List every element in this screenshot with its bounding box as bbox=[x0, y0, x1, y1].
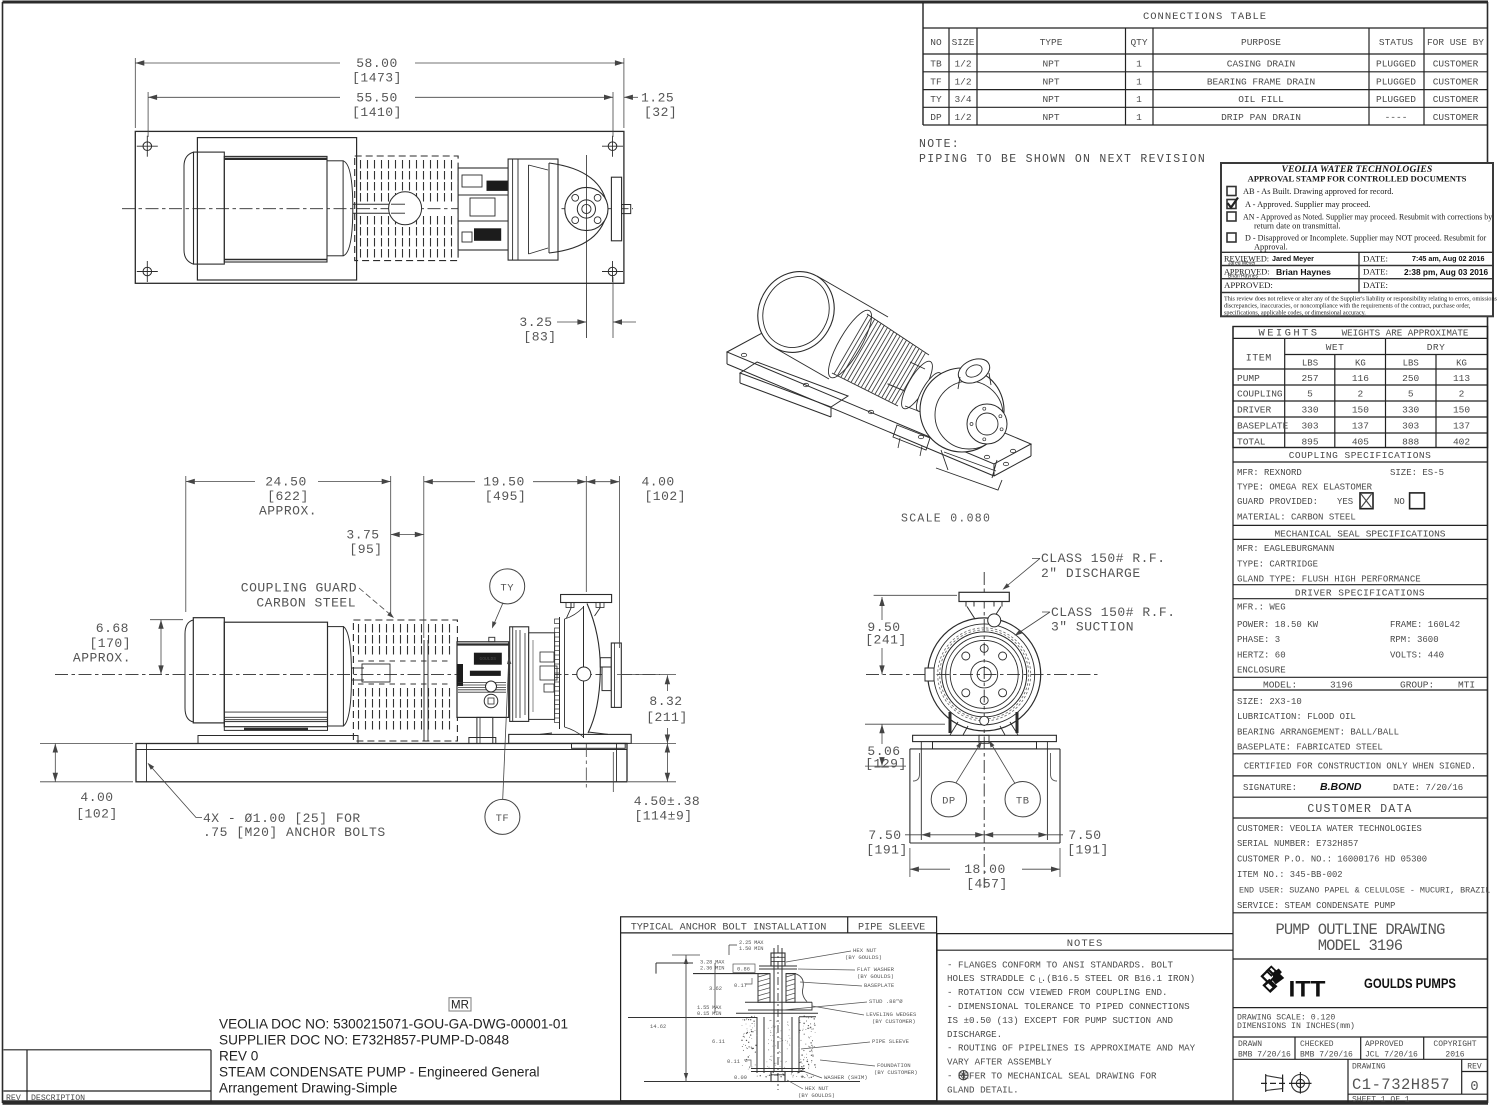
svg-text:POWER: 18.50 KW: POWER: 18.50 KW bbox=[1237, 620, 1319, 630]
svg-text:SCALE 0.080: SCALE 0.080 bbox=[901, 513, 991, 526]
svg-text:888: 888 bbox=[1402, 436, 1419, 447]
svg-text:TYPE: OMEGA REX ELASTOMER: TYPE: OMEGA REX ELASTOMER bbox=[1237, 483, 1373, 493]
svg-text:ENCLOSURE: ENCLOSURE bbox=[1237, 665, 1286, 675]
svg-text:- DIMENSIONAL TOLERANCE TO PIP: - DIMENSIONAL TOLERANCE TO PIPED CONNECT… bbox=[947, 1001, 1190, 1012]
svg-text:KG: KG bbox=[1355, 359, 1366, 369]
svg-text:AB - As Built. Drawing approv: AB - As Built. Drawing approved for reco… bbox=[1243, 187, 1393, 196]
svg-text:MFR: REXNORD: MFR: REXNORD bbox=[1237, 468, 1302, 478]
svg-text:COUPLING SPECIFICATIONS: COUPLING SPECIFICATIONS bbox=[1289, 450, 1432, 461]
svg-text:4.00: 4.00 bbox=[642, 475, 675, 490]
svg-text:DATE:: DATE: bbox=[1363, 267, 1388, 277]
svg-text:330: 330 bbox=[1301, 405, 1318, 416]
svg-text:[1473]: [1473] bbox=[352, 71, 402, 86]
svg-text:DRAWING: DRAWING bbox=[1352, 1063, 1386, 1072]
svg-text:ITT: ITT bbox=[1289, 977, 1327, 1002]
svg-text:This review does not relieve o: This review does not relieve or alter an… bbox=[1224, 296, 1497, 303]
svg-text:PURPOSE: PURPOSE bbox=[1241, 37, 1281, 48]
svg-text:specifications, applicable cod: specifications, applicable codes, or dim… bbox=[1224, 310, 1366, 317]
svg-text:895: 895 bbox=[1301, 436, 1318, 447]
svg-text:GOULDS PUMPS: GOULDS PUMPS bbox=[1364, 976, 1456, 991]
svg-text:DRY: DRY bbox=[1427, 342, 1446, 353]
svg-text:[191]: [191] bbox=[866, 842, 908, 857]
svg-text:[457]: [457] bbox=[966, 877, 1008, 892]
svg-text:Jared Meyer: Jared Meyer bbox=[1228, 261, 1256, 267]
svg-text:0.15 MIN: 0.15 MIN bbox=[697, 1011, 721, 1017]
svg-text:CUSTOMER: CUSTOMER bbox=[1433, 94, 1479, 105]
svg-text:SHEET 1 OF 1: SHEET 1 OF 1 bbox=[1352, 1096, 1410, 1105]
svg-text:SERIAL NUMBER: E732H857: SERIAL NUMBER: E732H857 bbox=[1237, 839, 1358, 849]
svg-text:HERTZ: 60: HERTZ: 60 bbox=[1237, 651, 1286, 661]
svg-text:KG: KG bbox=[1456, 359, 1467, 369]
svg-text:- ROTATION CCW VIEWED FROM COU: - ROTATION CCW VIEWED FROM COUPLING END. bbox=[947, 987, 1168, 998]
svg-text:TB: TB bbox=[1016, 795, 1030, 807]
svg-text:APPROX.: APPROX. bbox=[259, 504, 317, 519]
svg-text:STUD .88"Ø: STUD .88"Ø bbox=[869, 998, 903, 1005]
svg-text:(BY GOULDS): (BY GOULDS) bbox=[798, 1092, 835, 1099]
svg-text:1: 1 bbox=[1136, 94, 1142, 105]
svg-text:ITEM NO.: 345-BB-002: ITEM NO.: 345-BB-002 bbox=[1237, 870, 1343, 880]
svg-text:MECHANICAL SEAL SPECIFICATIONS: MECHANICAL SEAL SPECIFICATIONS bbox=[1274, 529, 1445, 540]
svg-text:WASHER (SHIM): WASHER (SHIM) bbox=[824, 1074, 868, 1081]
svg-text:BEARING ARRANGEMENT: BALL/BALL: BEARING ARRANGEMENT: BALL/BALL bbox=[1237, 728, 1399, 738]
svg-text:CASING DRAIN: CASING DRAIN bbox=[1227, 59, 1295, 70]
svg-text:NPT: NPT bbox=[1042, 76, 1059, 87]
svg-text:REV: REV bbox=[6, 1094, 21, 1103]
svg-text:GLAND DETAIL.: GLAND DETAIL. bbox=[947, 1084, 1019, 1095]
svg-text:3.25: 3.25 bbox=[519, 315, 552, 330]
svg-text:GLAND TYPE: FLUSH HIGH PERFORM: GLAND TYPE: FLUSH HIGH PERFORMANCE bbox=[1237, 574, 1421, 584]
svg-text:HOLES STRADDLE C .(B16.5 STEEL: HOLES STRADDLE C .(B16.5 STEEL OR B16.1 … bbox=[947, 973, 1195, 984]
svg-text:GOULDS: GOULDS bbox=[480, 656, 497, 662]
svg-text:END USER: SUZANO PAPEL & CELUL: END USER: SUZANO PAPEL & CELULOSE - MUCU… bbox=[1239, 885, 1490, 895]
svg-text:Brian Haynes: Brian Haynes bbox=[1276, 267, 1331, 277]
svg-text:14.62: 14.62 bbox=[650, 1024, 666, 1030]
svg-text:- FLANGES CONFORM TO ANSI STAN: - FLANGES CONFORM TO ANSI STANDARDS. BOL… bbox=[947, 959, 1174, 970]
svg-text:250: 250 bbox=[1402, 373, 1419, 384]
svg-text:NPT: NPT bbox=[1042, 94, 1059, 105]
svg-text:2:38 pm, Aug 03 2016: 2:38 pm, Aug 03 2016 bbox=[1404, 267, 1488, 277]
svg-text:B.BOND: B.BOND bbox=[1320, 781, 1362, 793]
svg-text:YES: YES bbox=[1337, 497, 1353, 507]
svg-text:1: 1 bbox=[1136, 76, 1142, 87]
svg-text:[83]: [83] bbox=[523, 330, 556, 345]
svg-text:CUSTOMER: CUSTOMER bbox=[1433, 59, 1479, 70]
svg-text:LBS: LBS bbox=[1302, 359, 1318, 369]
svg-text:HEX NUT: HEX NUT bbox=[853, 947, 877, 954]
svg-text:2016: 2016 bbox=[1445, 1050, 1464, 1059]
svg-text:DESCRIPTION: DESCRIPTION bbox=[31, 1094, 85, 1103]
svg-text:WEIGHTS ARE APPROXIMATE: WEIGHTS ARE APPROXIMATE bbox=[1342, 328, 1469, 339]
svg-text:BMB 7/20/16: BMB 7/20/16 bbox=[1238, 1050, 1291, 1059]
svg-text:BASEPLATE: BASEPLATE bbox=[1237, 421, 1289, 432]
svg-text:0.86: 0.86 bbox=[737, 967, 750, 973]
svg-text:MFR: EAGLEBURGMANN: MFR: EAGLEBURGMANN bbox=[1237, 544, 1334, 554]
svg-text:3/4: 3/4 bbox=[954, 94, 971, 105]
svg-text:DRIVER: DRIVER bbox=[1237, 405, 1272, 416]
svg-text:SIZE: ES-5: SIZE: ES-5 bbox=[1390, 468, 1444, 478]
svg-text:2" DISCHARGE: 2" DISCHARGE bbox=[1041, 566, 1141, 581]
svg-text:DIMENSIONS IN INCHES(mm): DIMENSIONS IN INCHES(mm) bbox=[1237, 1021, 1355, 1031]
svg-text:DISCHARGE.: DISCHARGE. bbox=[947, 1029, 1002, 1040]
svg-text:DATE: 7/20/16: DATE: 7/20/16 bbox=[1393, 783, 1463, 793]
svg-text:JCL 7/20/16: JCL 7/20/16 bbox=[1365, 1050, 1418, 1059]
svg-text:NOTE:: NOTE: bbox=[919, 138, 960, 151]
svg-text:TYPICAL ANCHOR BOLT INSTALLATI: TYPICAL ANCHOR BOLT INSTALLATION bbox=[631, 923, 827, 934]
svg-text:CUSTOMER: CUSTOMER bbox=[1433, 112, 1479, 123]
svg-text:7.50: 7.50 bbox=[1068, 828, 1101, 843]
svg-text:D - Disapproved or Incomplete: D - Disapproved or Incomplete. Supplier … bbox=[1245, 234, 1487, 243]
svg-text:SIZE: SIZE bbox=[952, 37, 975, 48]
svg-text:LBS: LBS bbox=[1403, 359, 1419, 369]
svg-text:A - Approved. Supplier may pr: A - Approved. Supplier may proceed. bbox=[1245, 200, 1370, 209]
svg-text:BEARING FRAME DRAIN: BEARING FRAME DRAIN bbox=[1207, 76, 1315, 87]
svg-text:55.50: 55.50 bbox=[356, 90, 398, 105]
svg-text:VOLTS: 440: VOLTS: 440 bbox=[1390, 651, 1444, 661]
svg-text:CLASS 150# R.F.: CLASS 150# R.F. bbox=[1051, 605, 1176, 620]
svg-text:[95]: [95] bbox=[349, 542, 382, 557]
svg-text:return date on transmittal.: return date on transmittal. bbox=[1254, 222, 1341, 231]
svg-text:STATUS: STATUS bbox=[1379, 37, 1414, 48]
svg-text:1.50 MIN: 1.50 MIN bbox=[739, 946, 763, 952]
svg-text:405: 405 bbox=[1352, 436, 1369, 447]
svg-text:TYPE: CARTRIDGE: TYPE: CARTRIDGE bbox=[1237, 559, 1318, 569]
svg-text:PUMP: PUMP bbox=[1237, 373, 1260, 384]
svg-text:0: 0 bbox=[1470, 1079, 1478, 1095]
svg-text:(BY CUSTOMER): (BY CUSTOMER) bbox=[874, 1069, 918, 1076]
svg-text:402: 402 bbox=[1453, 436, 1470, 447]
svg-text:[622]: [622] bbox=[267, 489, 309, 504]
svg-text:L: L bbox=[1038, 978, 1042, 986]
svg-text:PHASE: 3: PHASE: 3 bbox=[1237, 635, 1280, 645]
svg-text:303: 303 bbox=[1402, 421, 1419, 432]
svg-text:Jared Meyer: Jared Meyer bbox=[1272, 254, 1314, 263]
svg-text:MODEL:: MODEL: bbox=[1263, 680, 1297, 691]
svg-text:137: 137 bbox=[1352, 421, 1369, 432]
svg-text:(BY GOULDS): (BY GOULDS) bbox=[845, 954, 882, 961]
svg-text:6.11: 6.11 bbox=[712, 1039, 725, 1045]
svg-text:OIL FILL: OIL FILL bbox=[1238, 94, 1284, 105]
svg-text:WET: WET bbox=[1326, 342, 1345, 353]
svg-text:GUARD PROVIDED:: GUARD PROVIDED: bbox=[1237, 497, 1318, 507]
svg-text:NPT: NPT bbox=[1042, 112, 1059, 123]
svg-text:CUSTOMER: VEOLIA WATER TECHNOL: CUSTOMER: VEOLIA WATER TECHNOLOGIES bbox=[1237, 824, 1422, 834]
svg-text:3196: 3196 bbox=[1330, 680, 1353, 691]
svg-text:CHECKED: CHECKED bbox=[1300, 1040, 1334, 1049]
svg-text:COUPLING GUARD: COUPLING GUARD bbox=[241, 581, 357, 596]
svg-text:7:45 am, Aug 02 2016: 7:45 am, Aug 02 2016 bbox=[1412, 254, 1484, 263]
svg-text:DRIP PAN DRAIN: DRIP PAN DRAIN bbox=[1221, 112, 1301, 123]
svg-text:C1-732H857: C1-732H857 bbox=[1352, 1076, 1450, 1094]
svg-text:8.32: 8.32 bbox=[649, 694, 682, 709]
svg-text:2: 2 bbox=[1358, 389, 1364, 400]
svg-text:1/2: 1/2 bbox=[954, 112, 971, 123]
svg-text:BASEPLATE: FABRICATED STEEL: BASEPLATE: FABRICATED STEEL bbox=[1237, 743, 1383, 753]
svg-text:FOUNDATION: FOUNDATION bbox=[877, 1062, 911, 1069]
svg-text:WEIGHTS: WEIGHTS bbox=[1259, 328, 1320, 340]
svg-text:----: ---- bbox=[1385, 112, 1408, 123]
svg-text:PIPE SLEEVE: PIPE SLEEVE bbox=[872, 1038, 910, 1045]
svg-text:VEOLIA DOC NO: 5300215071-GOU-: VEOLIA DOC NO: 5300215071-GOU-GA-DWG-000… bbox=[219, 1016, 568, 1031]
svg-text:24.50: 24.50 bbox=[265, 475, 307, 490]
svg-text:TY: TY bbox=[500, 583, 514, 595]
svg-text:CUSTOMER P.O. NO.: 16000176 HD: CUSTOMER P.O. NO.: 16000176 HD 05300 bbox=[1237, 855, 1427, 865]
svg-text:Brian Haynes: Brian Haynes bbox=[1228, 274, 1259, 280]
svg-text:TOTAL: TOTAL bbox=[1237, 436, 1266, 447]
svg-text:MODEL 3196: MODEL 3196 bbox=[1318, 937, 1403, 955]
svg-text:DP: DP bbox=[930, 112, 942, 123]
svg-text:150: 150 bbox=[1352, 405, 1369, 416]
svg-text:CARBON STEEL: CARBON STEEL bbox=[256, 595, 356, 610]
svg-text:137: 137 bbox=[1453, 421, 1470, 432]
svg-text:RPM: 3600: RPM: 3600 bbox=[1390, 635, 1439, 645]
svg-text:NOTES: NOTES bbox=[1067, 938, 1104, 950]
svg-text:MATERIAL: CARBON STEEL: MATERIAL: CARBON STEEL bbox=[1237, 513, 1356, 523]
svg-text:COPYRIGHT: COPYRIGHT bbox=[1433, 1040, 1476, 1049]
svg-text:(BY GOULDS): (BY GOULDS) bbox=[857, 973, 894, 980]
svg-text:5: 5 bbox=[1408, 389, 1414, 400]
svg-text:CUSTOMER: CUSTOMER bbox=[1433, 76, 1479, 87]
svg-text:REV 0: REV 0 bbox=[219, 1048, 259, 1063]
svg-text:18.00: 18.00 bbox=[964, 862, 1006, 877]
svg-text:LEVELING WEDGES: LEVELING WEDGES bbox=[866, 1011, 917, 1018]
svg-text:APPROVED: APPROVED bbox=[1365, 1040, 1404, 1049]
svg-text:COUPLING: COUPLING bbox=[1237, 389, 1283, 400]
svg-text:TYPE: TYPE bbox=[1040, 37, 1063, 48]
svg-text:[495]: [495] bbox=[485, 489, 527, 504]
svg-text:CONNECTIONS TABLE: CONNECTIONS TABLE bbox=[1143, 11, 1267, 23]
svg-text:257: 257 bbox=[1301, 373, 1318, 384]
svg-text:[32]: [32] bbox=[644, 105, 677, 120]
svg-text:1.25: 1.25 bbox=[641, 90, 674, 105]
svg-text:IS ±0.50 (13) EXCEPT FOR PUMP: IS ±0.50 (13) EXCEPT FOR PUMP SUCTION AN… bbox=[947, 1015, 1174, 1026]
svg-text:PIPING TO BE SHOWN ON NEXT REV: PIPING TO BE SHOWN ON NEXT REVISION bbox=[919, 153, 1206, 166]
svg-text:FOR USE BY: FOR USE BY bbox=[1427, 37, 1484, 48]
svg-text:BMB 7/20/16: BMB 7/20/16 bbox=[1300, 1050, 1353, 1059]
svg-text:BASEPLATE: BASEPLATE bbox=[864, 982, 895, 989]
svg-text:CLASS 150# R.F.: CLASS 150# R.F. bbox=[1041, 551, 1166, 566]
svg-text:PLUGGED: PLUGGED bbox=[1376, 76, 1416, 87]
svg-text:DP: DP bbox=[942, 795, 956, 807]
svg-text:SUPPLIER DOC NO: E732H857-PUMP: SUPPLIER DOC NO: E732H857-PUMP-D-0848 bbox=[219, 1032, 509, 1047]
svg-text:TF: TF bbox=[496, 813, 510, 825]
svg-text:NPT: NPT bbox=[1042, 59, 1059, 70]
svg-text:FLAT WASHER: FLAT WASHER bbox=[857, 966, 895, 973]
svg-text:- REFER TO MECHANICAL SEAL: - REFER TO MECHANICAL SEAL DRAWING FOR bbox=[947, 1071, 1157, 1082]
svg-text:[211]: [211] bbox=[646, 710, 688, 725]
svg-text:(BY CUSTOMER): (BY CUSTOMER) bbox=[872, 1018, 916, 1025]
svg-text:APPROVED:: APPROVED: bbox=[1224, 280, 1273, 290]
svg-text:3.75: 3.75 bbox=[346, 528, 379, 543]
svg-text:DRIVER SPECIFICATIONS: DRIVER SPECIFICATIONS bbox=[1295, 588, 1425, 599]
svg-text:FRAME: 160L42: FRAME: 160L42 bbox=[1390, 620, 1460, 630]
svg-text:TB: TB bbox=[930, 59, 942, 70]
svg-text:330: 330 bbox=[1402, 405, 1419, 416]
svg-text:GROUP:: GROUP: bbox=[1400, 680, 1434, 691]
svg-text:0.09: 0.09 bbox=[734, 1075, 747, 1081]
svg-text:SERVICE: STEAM CONDENSATE PUMP: SERVICE: STEAM CONDENSATE PUMP bbox=[1237, 901, 1395, 911]
svg-text:116: 116 bbox=[1352, 373, 1369, 384]
svg-text:6.68: 6.68 bbox=[96, 621, 129, 636]
svg-text:[102]: [102] bbox=[76, 806, 118, 821]
svg-text:MTI: MTI bbox=[1458, 680, 1475, 691]
svg-text:HEX NUT: HEX NUT bbox=[805, 1085, 829, 1092]
svg-text:113: 113 bbox=[1453, 373, 1470, 384]
svg-text:Arrangement Drawing-Simple: Arrangement Drawing-Simple bbox=[219, 1080, 397, 1095]
svg-text:DRAWN: DRAWN bbox=[1238, 1040, 1262, 1049]
svg-text:2.36 MIN: 2.36 MIN bbox=[700, 966, 724, 972]
svg-text:[129]: [129] bbox=[865, 757, 907, 772]
svg-text:4.00: 4.00 bbox=[80, 790, 113, 805]
svg-text:VARY AFTER ASSEMBLY: VARY AFTER ASSEMBLY bbox=[947, 1057, 1052, 1068]
svg-text:QTY: QTY bbox=[1130, 37, 1147, 48]
svg-text:4.50±.38: 4.50±.38 bbox=[634, 794, 700, 809]
svg-text:MFR.: WEG: MFR.: WEG bbox=[1237, 603, 1286, 613]
svg-text:[102]: [102] bbox=[645, 489, 687, 504]
svg-text:REV: REV bbox=[1467, 1063, 1482, 1072]
svg-text:APPROVAL STAMP FOR CONTROLLED: APPROVAL STAMP FOR CONTROLLED DOCUMENTS bbox=[1248, 174, 1467, 184]
svg-text:DATE:: DATE: bbox=[1363, 254, 1388, 264]
svg-text:APPROX.: APPROX. bbox=[73, 650, 131, 665]
svg-text:.75 [M20] ANCHOR BOLTS: .75 [M20] ANCHOR BOLTS bbox=[203, 825, 386, 840]
svg-text:CUSTOMER DATA: CUSTOMER DATA bbox=[1307, 803, 1412, 816]
svg-text:[241]: [241] bbox=[865, 633, 907, 648]
svg-text:AN - Approved as Noted. Suppl: AN - Approved as Noted. Supplier may pro… bbox=[1243, 213, 1492, 222]
svg-text:5: 5 bbox=[1307, 389, 1313, 400]
svg-text:- ROUTING OF PIPELINES IS APPR: - ROUTING OF PIPELINES IS APPROXIMATE AN… bbox=[947, 1043, 1196, 1054]
svg-text:SIZE: 2X3-10: SIZE: 2X3-10 bbox=[1237, 697, 1302, 707]
svg-text:1: 1 bbox=[1136, 112, 1142, 123]
svg-text:TY: TY bbox=[930, 94, 942, 105]
svg-text:58.00: 58.00 bbox=[356, 56, 398, 71]
svg-text:1/2: 1/2 bbox=[954, 76, 971, 87]
svg-text:discrepancies, inaccuracies,: discrepancies, inaccuracies, or noncompl… bbox=[1224, 303, 1471, 310]
svg-text:303: 303 bbox=[1301, 421, 1318, 432]
svg-text:STEAM CONDENSATE PUMP - Engine: STEAM CONDENSATE PUMP - Engineered Gener… bbox=[219, 1064, 540, 1079]
svg-text:PIPE SLEEVE: PIPE SLEEVE bbox=[858, 923, 925, 934]
svg-text:TF: TF bbox=[930, 76, 942, 87]
svg-text:3.62: 3.62 bbox=[709, 986, 722, 992]
svg-text:4X - Ø1.00 [25] FOR: 4X - Ø1.00 [25] FOR bbox=[203, 811, 361, 826]
svg-text:NO: NO bbox=[930, 37, 942, 48]
svg-text:2: 2 bbox=[1459, 389, 1465, 400]
svg-text:[191]: [191] bbox=[1067, 842, 1109, 857]
svg-text:DATE:: DATE: bbox=[1363, 280, 1388, 290]
svg-text:CERTIFIED FOR CONSTRUCTION ONL: CERTIFIED FOR CONSTRUCTION ONLY WHEN SIG… bbox=[1244, 761, 1476, 771]
svg-text:7.50: 7.50 bbox=[868, 828, 901, 843]
svg-text:[1410]: [1410] bbox=[352, 105, 402, 120]
svg-text:[170]: [170] bbox=[89, 636, 131, 651]
svg-text:ITEM: ITEM bbox=[1246, 354, 1272, 365]
svg-text:PLUGGED: PLUGGED bbox=[1376, 59, 1416, 70]
svg-text:[114±9]: [114±9] bbox=[634, 809, 692, 824]
svg-text:PLUGGED: PLUGGED bbox=[1376, 94, 1416, 105]
svg-text:NO: NO bbox=[1394, 497, 1405, 507]
svg-text:3" SUCTION: 3" SUCTION bbox=[1051, 620, 1134, 635]
svg-text:0.11: 0.11 bbox=[727, 1059, 740, 1065]
svg-text:SIGNATURE:: SIGNATURE: bbox=[1243, 783, 1297, 793]
svg-text:150: 150 bbox=[1453, 405, 1470, 416]
svg-text:19.50: 19.50 bbox=[483, 475, 525, 490]
svg-text:MR: MR bbox=[451, 999, 469, 1011]
svg-text:Approval.: Approval. bbox=[1254, 243, 1288, 252]
svg-text:1/2: 1/2 bbox=[954, 59, 971, 70]
svg-text:1: 1 bbox=[1136, 59, 1142, 70]
svg-text:LUBRICATION: FLOOD OIL: LUBRICATION: FLOOD OIL bbox=[1237, 712, 1356, 722]
